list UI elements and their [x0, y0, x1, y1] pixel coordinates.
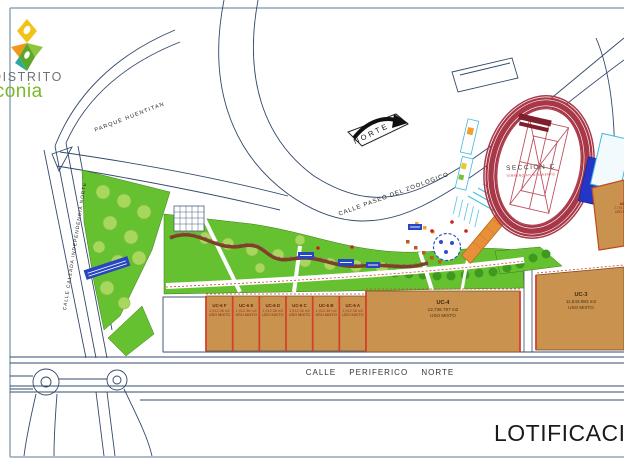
lot-uc6b-label: UC-6 B 1,912.38 m2 USO MIXTO: [313, 303, 340, 318]
splash-pad: [434, 234, 461, 261]
lot-uc6c-label: UC-6 C 1,912.38 m2 USO MIXTO: [286, 303, 313, 318]
stadium-west-strip: [460, 119, 478, 155]
lot-use: USO MIXTO: [313, 313, 340, 318]
logo-mark-icon: [9, 17, 45, 73]
lot-use: USO MIXTO: [383, 313, 503, 319]
lot-use: USO MIXTO: [541, 305, 621, 311]
lot-uc2-label: UC-2 2,734.584 m2 USO MIXTO: [596, 202, 624, 214]
lot-uc6e-label: UC-6 E 1,912.38 m2 USO MIXTO: [233, 303, 260, 318]
lot-uc2: [592, 180, 624, 250]
lot-use: USO MIXTO: [233, 313, 260, 318]
brand-logo: DISTRITO iconia: [0, 0, 80, 110]
lot-uc6f-label: UC-6 F 1,912.38 m2 USO MIXTO: [206, 303, 233, 318]
site-plan-drawing: [0, 0, 624, 468]
lot-uc4-label: UC-4 12,736.797 m2 USO MIXTO: [383, 300, 503, 318]
site-plan-page: DISTRITO iconia PARQUE HUENTITAN CALLE C…: [0, 0, 624, 468]
sheet-title: LOTIFICACIÓN: [494, 420, 624, 447]
lot-use: USO MIXTO: [259, 313, 286, 318]
lot-id: UC-3: [541, 292, 621, 299]
lot-use: USO MIXTO: [206, 313, 233, 318]
lot-uc6a-label: UC-6 A 1,912.38 m2 USO MIXTO: [339, 303, 366, 318]
plaza-grid: [174, 206, 204, 231]
lot-id: UC-4: [383, 300, 503, 307]
lot-uc6d-label: UC-6 D 1,912.38 m2 USO MIXTO: [259, 303, 286, 318]
lot-uc3-label: UC-3 11,843.983 m2 USO MIXTO: [541, 292, 621, 310]
stadium-west-strip: [455, 156, 473, 190]
lot-use: USO MIXTO: [596, 210, 624, 214]
lot-use: USO MIXTO: [339, 313, 366, 318]
label-periferico-norte: CALLE PERIFERICO NORTE: [295, 368, 465, 377]
lot-use: USO MIXTO: [286, 313, 313, 318]
lot-empty: [163, 297, 206, 352]
logo-wordmark-bottom: iconia: [0, 81, 43, 103]
